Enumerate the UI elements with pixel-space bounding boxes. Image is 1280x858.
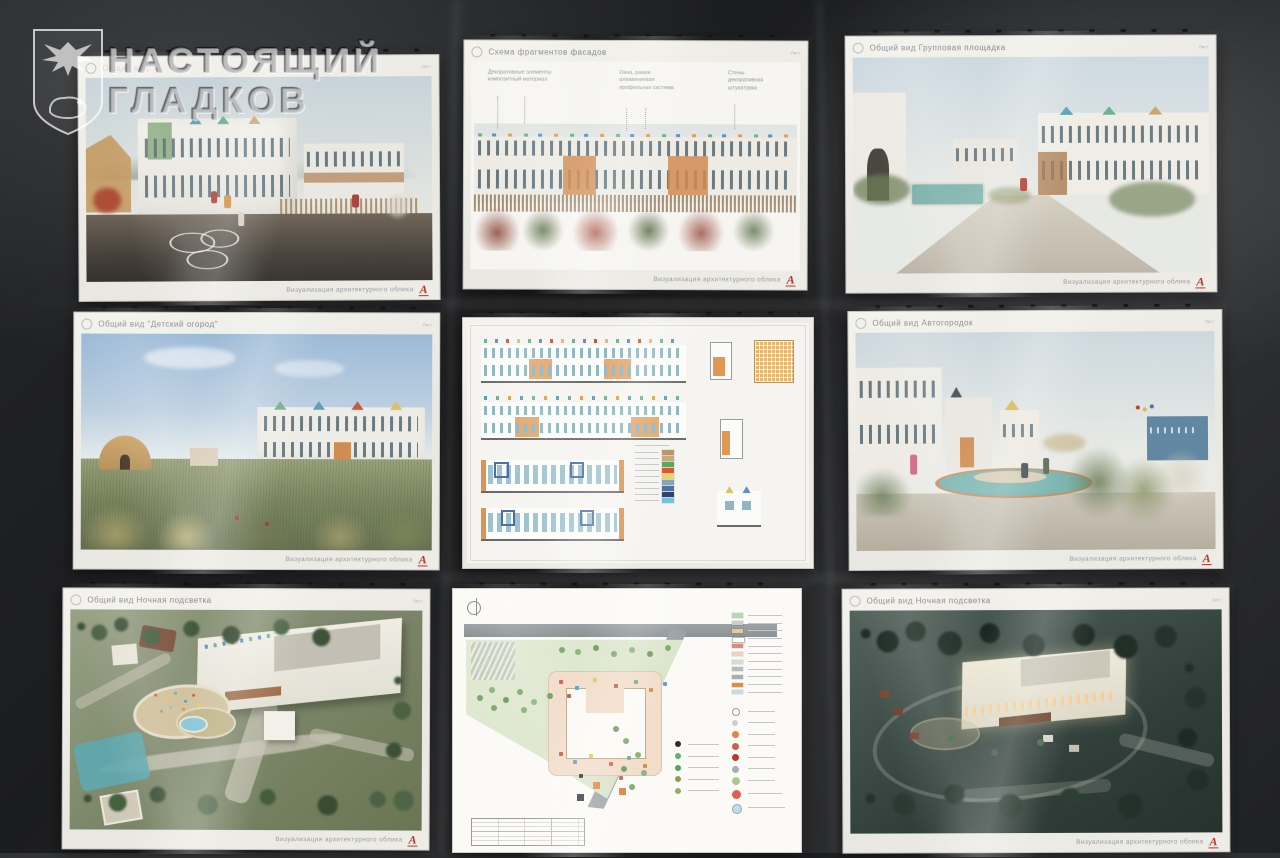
legend-swatch (662, 498, 674, 502)
legend-text (748, 615, 782, 616)
legend-circle (732, 743, 739, 750)
legend-text (635, 458, 659, 459)
orange-entrance (668, 156, 708, 196)
bushes-right (1053, 440, 1204, 524)
legend-text (748, 793, 782, 794)
watermark-line1: НАСТОЯЩИЙ (108, 40, 383, 82)
legend-text (748, 734, 775, 735)
legend-text (748, 676, 782, 677)
blue-frame (494, 462, 508, 478)
legend-text (748, 684, 782, 685)
orange-pillar (481, 460, 486, 491)
legend-swatch (732, 675, 742, 679)
blue-frame (580, 510, 594, 526)
bushes-left (856, 468, 921, 516)
legend-swatch (662, 474, 674, 478)
sleeve-perforation (466, 580, 788, 588)
sheet-stamp-icon (855, 318, 866, 329)
trees (394, 677, 402, 685)
window-band (484, 365, 682, 376)
legend-text (688, 790, 719, 791)
sheet-site-plan (452, 588, 802, 853)
blue-frame (501, 510, 515, 526)
trees (84, 794, 92, 802)
orange-entrance (563, 155, 596, 195)
sheet-stamp-icon (850, 596, 861, 607)
figure (1020, 178, 1026, 191)
studio-logo: А (408, 833, 418, 846)
window-row (307, 152, 400, 167)
window-row (859, 380, 934, 398)
sheet-number: Лист (1199, 44, 1209, 49)
sheet-footer: Визуализация архитектурного облика А (285, 552, 427, 566)
parking-rows (471, 642, 515, 680)
legend-swatch (732, 667, 742, 671)
legend-swatch (732, 621, 742, 625)
fragment-orange (722, 431, 731, 455)
footer-text: Визуализация архитектурного облика (1076, 838, 1203, 845)
leader-line (524, 97, 525, 124)
window-band (484, 348, 682, 358)
window (742, 501, 751, 511)
annotation: Окна, рамки алюминиевая профильная систе… (619, 70, 673, 92)
elevation-drawings (467, 323, 809, 563)
sheet-footer: Визуализация архитектурного облика А (286, 282, 428, 297)
playground-ground (86, 213, 432, 282)
leader-line (734, 104, 735, 129)
legend-circle (732, 804, 742, 814)
legend-text (635, 500, 659, 501)
legend-text (748, 711, 775, 712)
legend-heading (635, 445, 669, 446)
legend-swatch (732, 613, 742, 617)
road-top (464, 624, 777, 637)
sheet-night-lighting-day-aerial: Общий вид Ночная подсветка Лист (62, 587, 431, 850)
sheet-title: Общий вид "Детский огород" (98, 320, 218, 329)
red-roof-huts (880, 691, 889, 698)
window (725, 501, 734, 511)
fragment-lattice (754, 340, 794, 383)
window-row (264, 416, 418, 432)
wood-accent (304, 172, 404, 183)
sheet-number: Лист (791, 51, 801, 56)
window-row (477, 170, 793, 190)
legend-swatch (732, 690, 742, 694)
legend-circle (675, 741, 681, 747)
sheet-title: Общий вид Ночная подсветка (87, 595, 211, 604)
render-night-aerial (850, 609, 1223, 833)
window-row (859, 424, 934, 444)
bushes (853, 174, 910, 204)
fragment-orange (713, 357, 725, 376)
orange-pillar (619, 508, 624, 539)
orange-pillar (619, 460, 624, 491)
sheet-footer: Визуализация архитектурного облика А (1076, 834, 1218, 848)
legend-text (748, 780, 775, 781)
render-aerial-view (70, 609, 423, 830)
lit-trees (947, 735, 954, 742)
bushes (1109, 182, 1195, 217)
painted-circle (200, 229, 239, 247)
compass-needle (476, 598, 477, 616)
dark-trees (865, 793, 875, 803)
orange-play-squares (593, 782, 600, 789)
trees (559, 647, 565, 653)
legend-text (748, 757, 775, 758)
legend-swatch (732, 637, 744, 643)
legend-text (748, 653, 782, 654)
legend-text (635, 452, 659, 453)
play-area-markers (559, 680, 563, 684)
sleeve-perforation (476, 309, 800, 317)
legend-text (748, 638, 782, 639)
legend-text (748, 669, 782, 670)
legend-text (748, 722, 775, 723)
legend-text (748, 745, 775, 746)
figure-cyclist (387, 195, 408, 218)
studio-logo: А (1208, 835, 1218, 848)
footer-text: Визуализация архитектурного облика (1069, 555, 1196, 563)
annotation: Стены декоративная штукатурка (728, 71, 763, 93)
sheet-header: Общий вид Автогородок Лист (855, 314, 1214, 331)
sheet-children-garden: Общий вид "Детский огород" Лист Визуализ… (73, 312, 441, 571)
legend-swatch (732, 644, 742, 648)
legend-text (748, 807, 785, 808)
sheet-title: Общий вид Ночная подсветка (867, 596, 991, 605)
hut-door (120, 455, 131, 470)
render-group-playground (853, 56, 1210, 273)
sheet-footer: Визуализация архитектурного облика А (1063, 274, 1205, 288)
sheet-number: Лист (1212, 597, 1222, 602)
legend-swatch (732, 660, 742, 664)
legend-circle (675, 753, 681, 759)
foreground-vegetation (471, 203, 800, 254)
sheet-footer: Визуализация архитектурного облика А (653, 272, 795, 286)
legend-text (748, 630, 782, 631)
legend-text (688, 779, 719, 780)
figure (1043, 458, 1050, 473)
window-band (484, 423, 682, 434)
legend-circle (732, 766, 739, 773)
legend-swatch (662, 486, 674, 490)
legend-text (748, 623, 782, 624)
sheet-auto-town: Общий вид Автогородок Лист (847, 309, 1223, 571)
legend-swatch (662, 462, 674, 466)
photo-of-architectural-sheets: Общий вид Лист (0, 0, 1280, 853)
red-play-equipment (93, 188, 121, 213)
small-pavilion (112, 644, 138, 666)
sheet-number: Лист (1205, 319, 1215, 324)
window-row (1042, 126, 1202, 144)
gable-row (484, 396, 682, 400)
dark-trees (861, 628, 871, 638)
legend-circle (732, 708, 740, 716)
figure-child (238, 212, 244, 226)
white-tents (1043, 735, 1053, 742)
sheet-number: Лист (423, 322, 433, 327)
sheet-title: Общий вид Групповая площадка (870, 43, 1006, 52)
legend-swatch (662, 468, 674, 472)
belgorod-coat-of-arms-icon (30, 26, 106, 138)
window-row (478, 140, 794, 156)
footer-text: Визуализация архитектурного облика (285, 556, 412, 563)
legend-text (688, 767, 719, 768)
sheet-stamp-icon (81, 319, 92, 330)
sheet-stamp-icon (471, 46, 482, 57)
legend-swatch (662, 456, 674, 460)
legend-text (635, 464, 659, 465)
watermark-line2: ГЛАДКОВ (108, 80, 310, 122)
window-band (484, 406, 682, 416)
footer-text: Визуализация архитектурного облика (1063, 278, 1190, 285)
footer-text: Визуализация архитектурного облика (653, 276, 780, 283)
legend-text (635, 470, 659, 471)
sheet-footer: Визуализация архитектурного облика А (275, 832, 417, 846)
legend-circle (732, 790, 741, 799)
legend-text (688, 744, 719, 745)
sheet-facade-fragments: Схема фрагментов фасадов Лист Декоративн… (463, 39, 809, 290)
sheet-stamp-icon (853, 43, 864, 54)
legend-circle (675, 776, 681, 782)
fragment-facade (717, 491, 761, 527)
dark-trees (1185, 663, 1194, 672)
sheet-title: Общий вид Автогородок (872, 318, 973, 328)
facade-drawing: Декоративные элементы композитный матери… (471, 61, 801, 270)
figure (211, 191, 217, 203)
sheet-title: Схема фрагментов фасадов (488, 47, 606, 56)
orange-door (960, 437, 975, 468)
legend-swatch (662, 492, 674, 496)
sheet-night-lighting-aerial: Общий вид Ночная подсветка Лист Визуализ… (842, 587, 1231, 853)
leader-line (645, 108, 646, 129)
annotation: Декоративные элементы композитный матери… (488, 70, 552, 85)
legend-text (635, 482, 659, 483)
figure-pink (910, 455, 917, 475)
render-auto-town (855, 331, 1215, 551)
legend-table (471, 818, 585, 846)
window-row (145, 175, 290, 198)
sheet-number: Лист (422, 64, 432, 69)
figure (1021, 463, 1028, 478)
splash-pool (910, 182, 985, 206)
window-row (1150, 427, 1197, 434)
cloud (144, 347, 235, 369)
legend-text (635, 488, 659, 489)
sheet-header: Схема фрагментов фасадов Лист (471, 44, 800, 60)
sheet-stamp-icon (70, 594, 81, 605)
blue-frame (570, 462, 584, 478)
bottom-margin (471, 251, 800, 271)
sheet-header: Общий вид Ночная подсветка Лист (70, 592, 422, 608)
legend-swatch (732, 652, 742, 656)
sheet-group-playground: Общий вид Групповая площадка Лист Визуал… (845, 34, 1218, 293)
legend-swatch (662, 480, 674, 484)
legend-circle (732, 777, 740, 785)
studio-logo: А (1195, 275, 1205, 288)
site-plan-drawing (457, 593, 797, 849)
legend-text (635, 494, 659, 495)
legend-swatch (732, 683, 742, 687)
wood-pergola (1038, 152, 1067, 195)
splash-pool (179, 715, 208, 732)
sheet-number: Лист (413, 599, 423, 604)
legend-circle (732, 754, 739, 761)
figure (224, 195, 230, 207)
legend-text (748, 646, 782, 647)
sheet-footer: Визуализация архитектурного облика А (1069, 551, 1211, 566)
gable-row (484, 339, 682, 343)
legend-swatch (662, 450, 674, 454)
legend-swatch (732, 629, 742, 633)
legend-circle (675, 765, 681, 771)
legend-circle (732, 731, 739, 738)
studio-logo: А (1202, 552, 1212, 565)
fabric-fold (813, 0, 842, 853)
leader-line (497, 97, 498, 128)
studio-logo: А (418, 553, 428, 566)
legend-text (748, 661, 782, 662)
window-row (956, 148, 1013, 161)
sheet-facade-elevations (462, 317, 814, 569)
studio-logo: А (786, 273, 796, 286)
footer-text: Визуализация архитектурного облика (275, 836, 402, 843)
studio-logo: А (419, 283, 429, 296)
play-area-markers (559, 752, 563, 756)
legend-circle (675, 788, 681, 794)
legend-text (635, 476, 659, 477)
building-notch (586, 688, 623, 714)
figure (352, 195, 358, 207)
north-compass-icon (467, 601, 481, 615)
small-hut (190, 448, 218, 465)
leader-line (626, 108, 627, 131)
orange-pillar (481, 508, 486, 539)
legend-text (688, 756, 719, 757)
white-hut (264, 711, 296, 740)
legend-text (748, 768, 775, 769)
window-row (1003, 424, 1035, 437)
tall-grasses (81, 498, 432, 551)
sandbox (99, 789, 143, 826)
sheet-header: Общий вид Групповая площадка Лист (853, 39, 1209, 55)
legend-text (748, 692, 782, 693)
footer-text: Визуализация архитектурного облика (286, 286, 413, 294)
window-row (145, 138, 290, 157)
render-children-garden (81, 334, 433, 551)
legend-circle (732, 720, 738, 726)
sheet-header: Общий вид Ночная подсветка Лист (850, 592, 1222, 608)
sheet-header: Общий вид "Детский огород" Лист (81, 317, 432, 333)
